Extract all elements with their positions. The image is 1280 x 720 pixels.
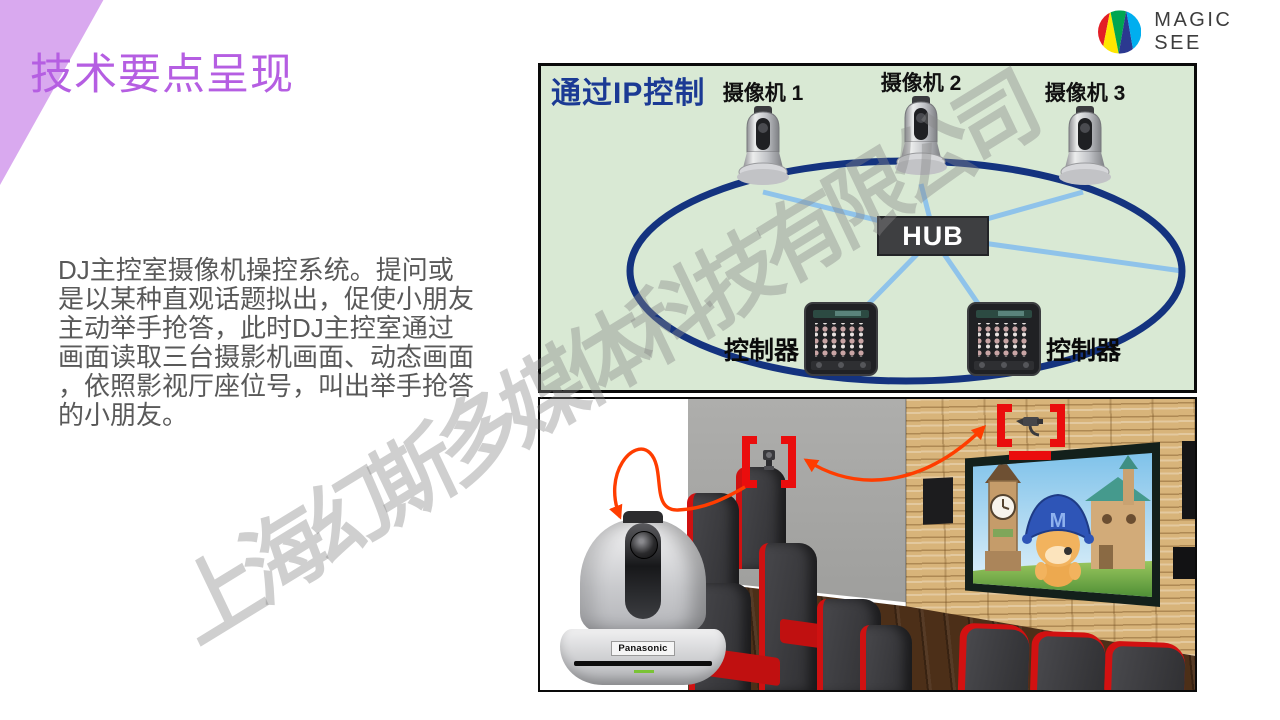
body-line: 是以某种直观话题拟出，促使小朋友 — [58, 285, 474, 314]
controller-device-2 — [966, 301, 1042, 377]
controller-1-label: 控制器 — [721, 331, 799, 367]
controller-icon — [966, 301, 1042, 377]
theater-seat — [860, 625, 912, 692]
bracket-left — [742, 436, 757, 488]
panasonic-ptz-camera: Panasonic — [560, 509, 726, 687]
ptz-camera-icon — [895, 96, 947, 180]
body-line: DJ主控室摄像机操控系统。提问或 — [58, 256, 474, 285]
mini-camera-icon — [1014, 413, 1048, 441]
ptz-camera-icon — [737, 106, 789, 190]
mini-camera-icon — [761, 448, 777, 474]
wall-speaker — [923, 477, 953, 525]
camera-3-label: 摄像机 3 — [1033, 82, 1137, 106]
camera-1-label: 摄像机 1 — [711, 82, 815, 106]
camera-2-label: 摄像机 2 — [869, 72, 973, 96]
base-slit — [574, 661, 712, 666]
body-line: ，依照影视厅座位号，叫出举手抢答 — [58, 372, 474, 401]
bracket-left — [997, 404, 1012, 447]
pinwheel-logo-icon — [1098, 9, 1141, 55]
brand-logo-text: MAGIC SEE — [1154, 9, 1280, 55]
camera-position-marker-wall — [742, 436, 796, 488]
camera-node-3: 摄像机 3 — [1033, 82, 1137, 195]
wall-speaker — [1182, 441, 1197, 519]
ptz-camera-icon — [1059, 106, 1111, 190]
theater-install-photo: M — [538, 397, 1197, 692]
theater-seat — [1030, 631, 1106, 692]
camera-top-knob — [623, 511, 663, 523]
body-line: 的小朋友。 — [58, 401, 474, 430]
cartoon-scene: M — [973, 453, 1152, 597]
camera-position-marker-screenwall — [997, 404, 1065, 460]
camera-lens — [630, 531, 658, 559]
hat-letter: M — [1050, 510, 1067, 532]
brand-plate: Panasonic — [611, 641, 675, 656]
projection-screen-image: M — [973, 453, 1152, 597]
bracket-right — [781, 436, 796, 488]
controller-device-1 — [803, 301, 879, 377]
body-paragraph: DJ主控室摄像机操控系统。提问或 是以某种直观话题拟出，促使小朋友 主动举手抢答… — [58, 256, 474, 430]
body-line: 画面读取三台摄影机画面、动态画面 — [58, 343, 474, 372]
controller-2-label: 控制器 — [1046, 331, 1121, 367]
wall-corner — [905, 399, 907, 607]
theater-seat — [958, 623, 1030, 692]
brand-logo: MAGIC SEE — [1098, 9, 1280, 55]
page-title: 技术要点呈现 — [30, 40, 294, 102]
power-led — [634, 670, 654, 673]
wall-speaker — [1173, 547, 1197, 579]
theater-seat — [1104, 641, 1186, 692]
hub-box: HUB — [877, 216, 989, 256]
slide-canvas: 技术要点呈现 MAGIC SEE DJ主控室摄像机操控系统。提问或 是以某种直观… — [0, 0, 1280, 720]
camera-node-2: 摄像机 2 — [869, 72, 973, 185]
camera-node-1: 摄像机 1 — [711, 82, 815, 195]
controller-icon — [803, 301, 879, 377]
bracket-underline — [1009, 451, 1051, 460]
bracket-right — [1050, 404, 1065, 447]
camera-base: Panasonic — [560, 629, 726, 685]
body-line: 主动举手抢答，此时DJ主控室通过 — [58, 314, 474, 343]
diagram-title: 通过IP控制 — [551, 68, 705, 112]
ip-control-diagram: 通过IP控制 摄像机 1 摄像机 2 — [538, 63, 1197, 393]
